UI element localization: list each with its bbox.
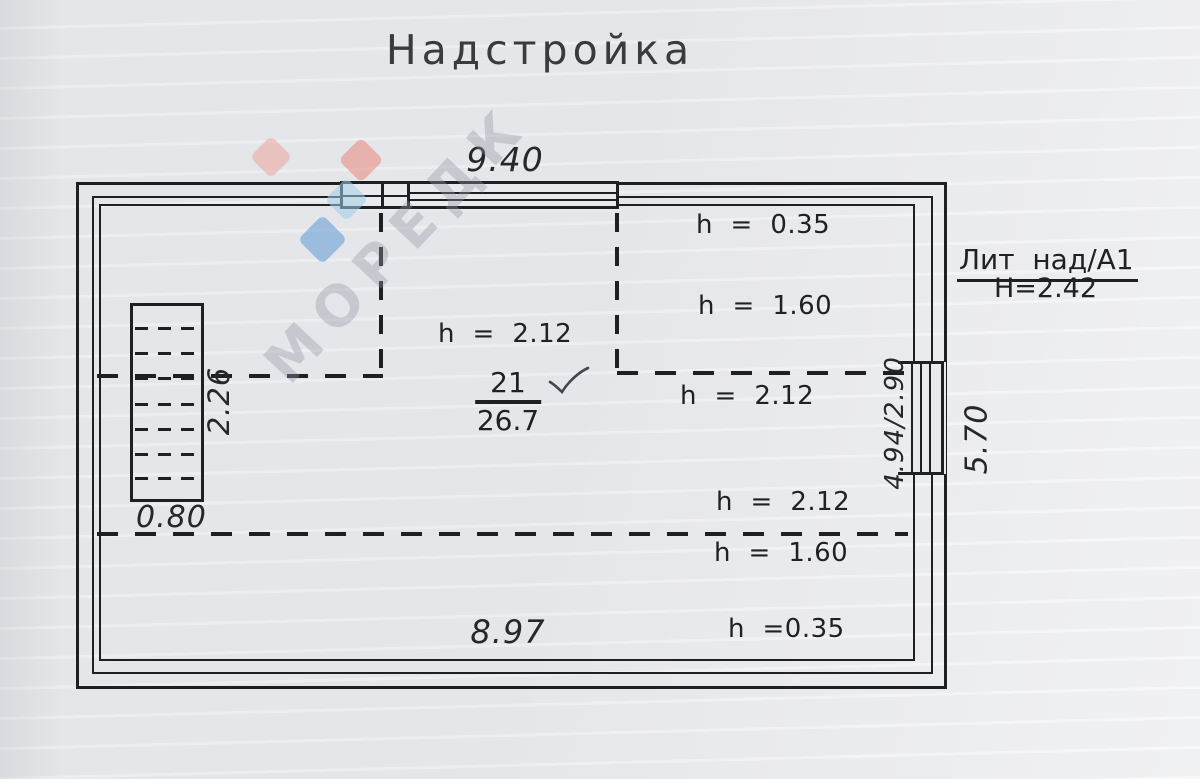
height-label-lower-upper: h = 2.12: [716, 487, 850, 517]
dashed-line-vertical-right: [615, 213, 619, 373]
height-label-mid-right: h = 2.12: [680, 381, 814, 411]
staircase: [130, 303, 204, 502]
room-label: 21 26.7: [475, 366, 541, 437]
dimension-bottom-width: 8.97: [470, 613, 545, 651]
right-window: [909, 362, 946, 474]
room-area: 26.7: [475, 404, 541, 437]
dimension-stair-width: 0.80: [136, 500, 207, 535]
room-number: 21: [475, 366, 541, 404]
height-label-lower-below: h = 1.60: [714, 538, 848, 568]
height-label-top-far: h = 0.35: [696, 210, 830, 240]
top-window: [340, 180, 619, 211]
liter-total-height: Н=2.42: [994, 273, 1097, 304]
dimension-right-side: 5.70: [960, 404, 995, 475]
dimension-right-window: 4.94/2.90: [880, 356, 910, 490]
height-label-center: h = 2.12: [438, 319, 572, 349]
floor-plan: Надстройка 9.40 8.97 0: [0, 0, 1200, 779]
height-label-bottom-far: h =0.35: [728, 614, 845, 644]
dashed-line-vertical-left: [379, 213, 383, 373]
dimension-top-width: 9.40: [466, 140, 543, 179]
dashed-line-upper-right: [617, 371, 906, 375]
dashed-line-lower: [97, 532, 908, 536]
dimension-stair-depth: 2.26: [202, 367, 236, 436]
checkmark-icon: [546, 365, 592, 399]
drawing-title: Надстройка: [386, 26, 694, 74]
height-label-top-mid: h = 1.60: [698, 291, 832, 321]
